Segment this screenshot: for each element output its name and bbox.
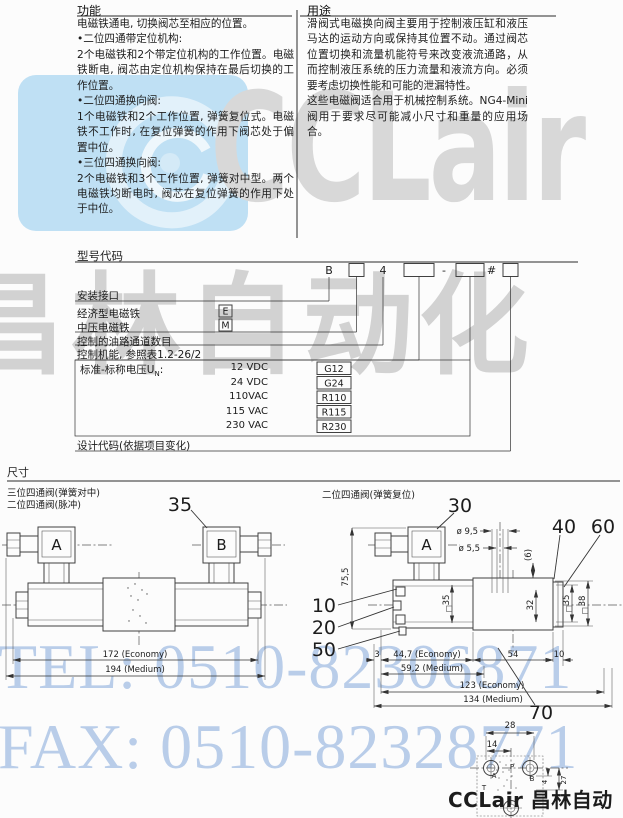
code-box-design xyxy=(503,264,518,277)
dim-dia-9-5: ø 9,5 xyxy=(457,527,478,537)
application-paragraph: 这些电磁阀适合用于机械控制系统。NG4-Mini阀用于要求尽可能减小尺寸和重量的… xyxy=(307,94,528,140)
callout-20: 20 xyxy=(312,617,336,639)
dim-75-5: 75,5 xyxy=(341,568,351,587)
code-box-voltage xyxy=(456,264,484,277)
economy-code: E xyxy=(222,307,228,318)
function-paragraph: 电磁铁通电, 切换阀芯至相应的位置。 xyxy=(77,17,294,32)
dim-123: 123 (Economy) xyxy=(460,681,525,691)
voltage-24vdc: 24 VDC xyxy=(206,377,268,388)
function-paragraph: 1个电磁铁和2个工作位置, 弹簧复位式。电磁铁不工作时, 在复位弹簧的作用下阀芯… xyxy=(77,110,294,156)
application-paragraph: 滑阀式电磁换向阀主要用于控制液压缸和液压马达的运动方向或保持其位置不动。通过阀芯… xyxy=(307,17,528,94)
dimensions-title: 尺寸 xyxy=(7,464,29,480)
dim-6: (6) xyxy=(524,549,534,561)
right-drawing-caption: 二位四通阀(弹簧复位) xyxy=(322,487,415,501)
code-hash: # xyxy=(487,264,496,277)
label-nominal-voltage: 标准-标称电压UN: xyxy=(80,362,163,378)
function-section: 电磁铁通电, 切换阀芯至相应的位置。 •二位四通带定位机构: 2个电磁铁和2个带… xyxy=(77,17,294,218)
dim-59-2: 59,2 (Medium) xyxy=(401,664,463,674)
voltage-110vac: 110VAC xyxy=(206,391,268,402)
label-design-code: 设计代码(依据项目变化) xyxy=(77,438,190,453)
voltage-code-r230: R230 xyxy=(322,422,347,433)
label-mounting: 安装接口 xyxy=(77,288,119,303)
dim-14: 14 xyxy=(487,740,498,750)
left-valve-drawing: A B 35 xyxy=(2,494,287,680)
voltage-12vdc: 12 VDC xyxy=(206,362,268,373)
voltage-label-colon: : xyxy=(160,364,164,376)
function-paragraph: •二位四通换向阀: xyxy=(77,94,294,109)
label-medium-solenoid: 中压电磁铁 xyxy=(77,320,130,335)
dim-44-7: 44,7 (Economy) xyxy=(393,650,460,660)
right-valve-drawing: A 30 ø 9,5 ø 5,5 (6) 40 60 xyxy=(312,495,622,818)
voltage-115vac: 115 VAC xyxy=(206,406,268,417)
dim-10: 10 xyxy=(554,650,565,660)
callout-50: 50 xyxy=(312,639,336,661)
function-paragraph: 2个电磁铁和2个带定位机构的工作位置。电磁铁断电, 阀芯由定位机构保持在最后切换… xyxy=(77,48,294,94)
callout-60: 60 xyxy=(591,516,615,538)
medium-code: M xyxy=(221,321,229,332)
dim-35-left: 35 xyxy=(442,595,452,606)
voltage-code-g12: G12 xyxy=(324,364,343,375)
left-drawing-caption-2: 二位四通阀(脉冲) xyxy=(7,497,81,511)
model-code-title: 型号代码 xyxy=(77,248,123,264)
code-prefix: B xyxy=(325,264,333,277)
solenoid-a-label: A xyxy=(421,536,432,554)
dim-54: 54 xyxy=(508,650,519,660)
voltage-230vac: 230 VAC xyxy=(206,420,268,431)
code-box-solenoid xyxy=(349,264,364,277)
dim-dia-5-5: ø 5,5 xyxy=(459,544,480,554)
dim-35-right: 35 xyxy=(562,595,572,606)
dim-3: 3 xyxy=(374,650,379,660)
dim-172-economy: 172 (Economy) xyxy=(103,650,168,660)
dim-134: 134 (Medium) xyxy=(463,695,523,705)
solenoid-b-label: B xyxy=(216,536,226,554)
callout-35: 35 xyxy=(168,494,192,516)
function-paragraph: 2个电磁铁和3个工作位置, 弹簧对中型。两个电磁铁均断电时, 阀芯在复位弹簧的作… xyxy=(77,172,294,218)
callout-30: 30 xyxy=(448,495,472,517)
dim-194-medium: 194 (Medium) xyxy=(105,665,165,675)
voltage-label-prefix: 标准-标称电压U xyxy=(80,364,154,376)
datasheet-page: CCLair 昌林自动化 TEL: 0510-82306871 FAX: 051… xyxy=(0,0,623,818)
function-paragraph: •三位四通换向阀: xyxy=(77,156,294,171)
code-dash: - xyxy=(442,264,446,277)
voltage-code-r115: R115 xyxy=(322,408,347,419)
label-control-function: 控制机能, 参照表1.2-26/2 xyxy=(77,347,201,362)
footer-brand: CCLair 昌林自动化 xyxy=(448,784,623,818)
voltage-code-g24: G24 xyxy=(324,379,343,390)
application-section: 滑阀式电磁换向阀主要用于控制液压缸和液压马达的运动方向或保持其位置不动。通过阀芯… xyxy=(307,17,528,141)
voltage-code-r110: R110 xyxy=(322,393,347,404)
callout-10: 10 xyxy=(312,595,336,617)
port-a-label: A xyxy=(492,772,497,780)
label-economy-solenoid: 经济型电磁铁 xyxy=(77,306,140,321)
solenoid-a-label: A xyxy=(51,536,62,554)
callout-40: 40 xyxy=(552,516,576,538)
callout-70: 70 xyxy=(529,702,553,724)
dim-38: 38 xyxy=(578,596,588,607)
function-paragraph: •二位四通带定位机构: xyxy=(77,32,294,47)
code-size: 4 xyxy=(380,264,387,277)
dim-32: 32 xyxy=(526,600,536,611)
dim-28: 28 xyxy=(505,721,516,731)
port-b-label: B xyxy=(530,775,535,783)
code-box-function xyxy=(404,264,434,277)
